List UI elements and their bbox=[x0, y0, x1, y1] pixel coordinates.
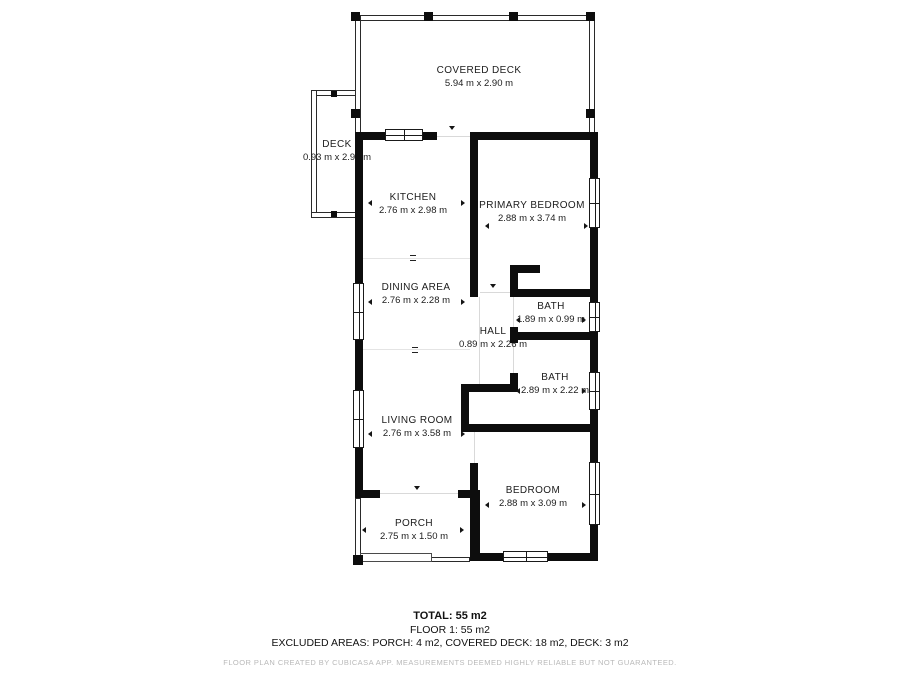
measure-arrow bbox=[368, 299, 372, 305]
porch-post bbox=[353, 555, 363, 565]
deck-post bbox=[424, 12, 433, 21]
deck-post bbox=[509, 12, 518, 21]
deck-post bbox=[351, 109, 360, 118]
area-separator-line bbox=[363, 258, 470, 259]
porch-rail-left bbox=[355, 498, 361, 560]
window bbox=[589, 462, 600, 525]
door-tick bbox=[449, 126, 455, 130]
wall-segment bbox=[461, 424, 598, 432]
room-label-porch: PORCH 2.75 m x 1.50 m bbox=[380, 518, 448, 542]
deck-post bbox=[331, 211, 337, 217]
wall-segment bbox=[548, 553, 598, 561]
wall-segment bbox=[590, 410, 598, 462]
room-label-kitchen: KITCHEN 2.76 m x 2.98 m bbox=[379, 192, 447, 216]
window bbox=[589, 372, 600, 410]
measure-arrow bbox=[516, 388, 520, 394]
wall-segment bbox=[355, 490, 380, 498]
measure-arrow bbox=[582, 502, 586, 508]
room-label-covered-deck: COVERED DECK 5.94 m x 2.90 m bbox=[437, 65, 522, 89]
deck-post bbox=[331, 91, 337, 97]
door-opening-line bbox=[378, 493, 458, 494]
measure-arrow bbox=[368, 431, 372, 437]
summary-excluded: EXCLUDED AREAS: PORCH: 4 m2, COVERED DEC… bbox=[0, 637, 900, 649]
deck-post bbox=[351, 12, 360, 21]
wall-segment bbox=[510, 327, 518, 343]
summary-floor: FLOOR 1: 55 m2 bbox=[0, 624, 900, 636]
deck-post bbox=[586, 12, 595, 21]
door-opening-line bbox=[480, 292, 510, 293]
room-label-bath-1: BATH 1.89 m x 0.99 m bbox=[517, 301, 585, 325]
measure-arrow bbox=[460, 527, 464, 533]
wall-segment bbox=[470, 490, 480, 560]
measure-arrow bbox=[461, 299, 465, 305]
door-tick bbox=[490, 284, 496, 288]
door-opening-line bbox=[513, 297, 514, 327]
door-opening-line bbox=[437, 136, 470, 137]
measure-arrow bbox=[485, 223, 489, 229]
footer-disclaimer: FLOOR PLAN CREATED BY CUBICASA APP. MEAS… bbox=[0, 658, 900, 667]
wall-segment bbox=[590, 228, 598, 302]
wall-segment bbox=[518, 332, 590, 340]
wall-segment bbox=[458, 490, 470, 498]
wall-segment bbox=[510, 265, 518, 297]
deck-post bbox=[586, 109, 595, 118]
porch-step bbox=[360, 553, 432, 562]
measure-arrow bbox=[461, 200, 465, 206]
measure-arrow bbox=[461, 431, 465, 437]
wall-segment bbox=[518, 289, 590, 297]
wall-segment bbox=[590, 332, 598, 372]
measure-arrow bbox=[584, 223, 588, 229]
measure-arrow bbox=[582, 317, 586, 323]
window bbox=[353, 390, 364, 448]
wall-segment bbox=[470, 140, 478, 297]
room-label-dining-area: DINING AREA 2.76 m x 2.28 m bbox=[382, 282, 451, 306]
measure-arrow bbox=[582, 388, 586, 394]
door-opening-line bbox=[474, 432, 475, 463]
room-label-living-room: LIVING ROOM 2.76 m x 3.58 m bbox=[381, 415, 452, 439]
window bbox=[589, 302, 600, 332]
room-label-bath-2: BATH 2.89 m x 2.22 m bbox=[521, 372, 589, 396]
window bbox=[385, 129, 423, 141]
covered-deck-rail-top bbox=[355, 15, 595, 21]
measure-arrow bbox=[368, 200, 372, 206]
wall-segment bbox=[423, 132, 437, 140]
door-tick bbox=[414, 486, 420, 490]
room-label-primary-bedroom: PRIMARY BEDROOM 2.88 m x 3.74 m bbox=[479, 200, 585, 224]
wall-segment bbox=[355, 340, 363, 390]
measure-arrow bbox=[362, 527, 366, 533]
wall-segment bbox=[355, 132, 363, 283]
window bbox=[589, 178, 600, 228]
open-boundary-mark bbox=[410, 255, 416, 261]
room-label-bedroom: BEDROOM 2.88 m x 3.09 m bbox=[499, 485, 567, 509]
measure-arrow bbox=[485, 502, 489, 508]
summary-total: TOTAL: 55 m2 bbox=[0, 610, 900, 622]
wall-segment bbox=[590, 132, 598, 178]
window bbox=[353, 283, 364, 340]
open-boundary-mark bbox=[412, 347, 418, 353]
floor-plan-canvas: COVERED DECK 5.94 m x 2.90 m DECK 0.93 m… bbox=[0, 0, 900, 675]
measure-arrow bbox=[516, 317, 520, 323]
window bbox=[503, 551, 548, 562]
wall-segment bbox=[461, 384, 518, 392]
wall-segment bbox=[470, 132, 598, 140]
